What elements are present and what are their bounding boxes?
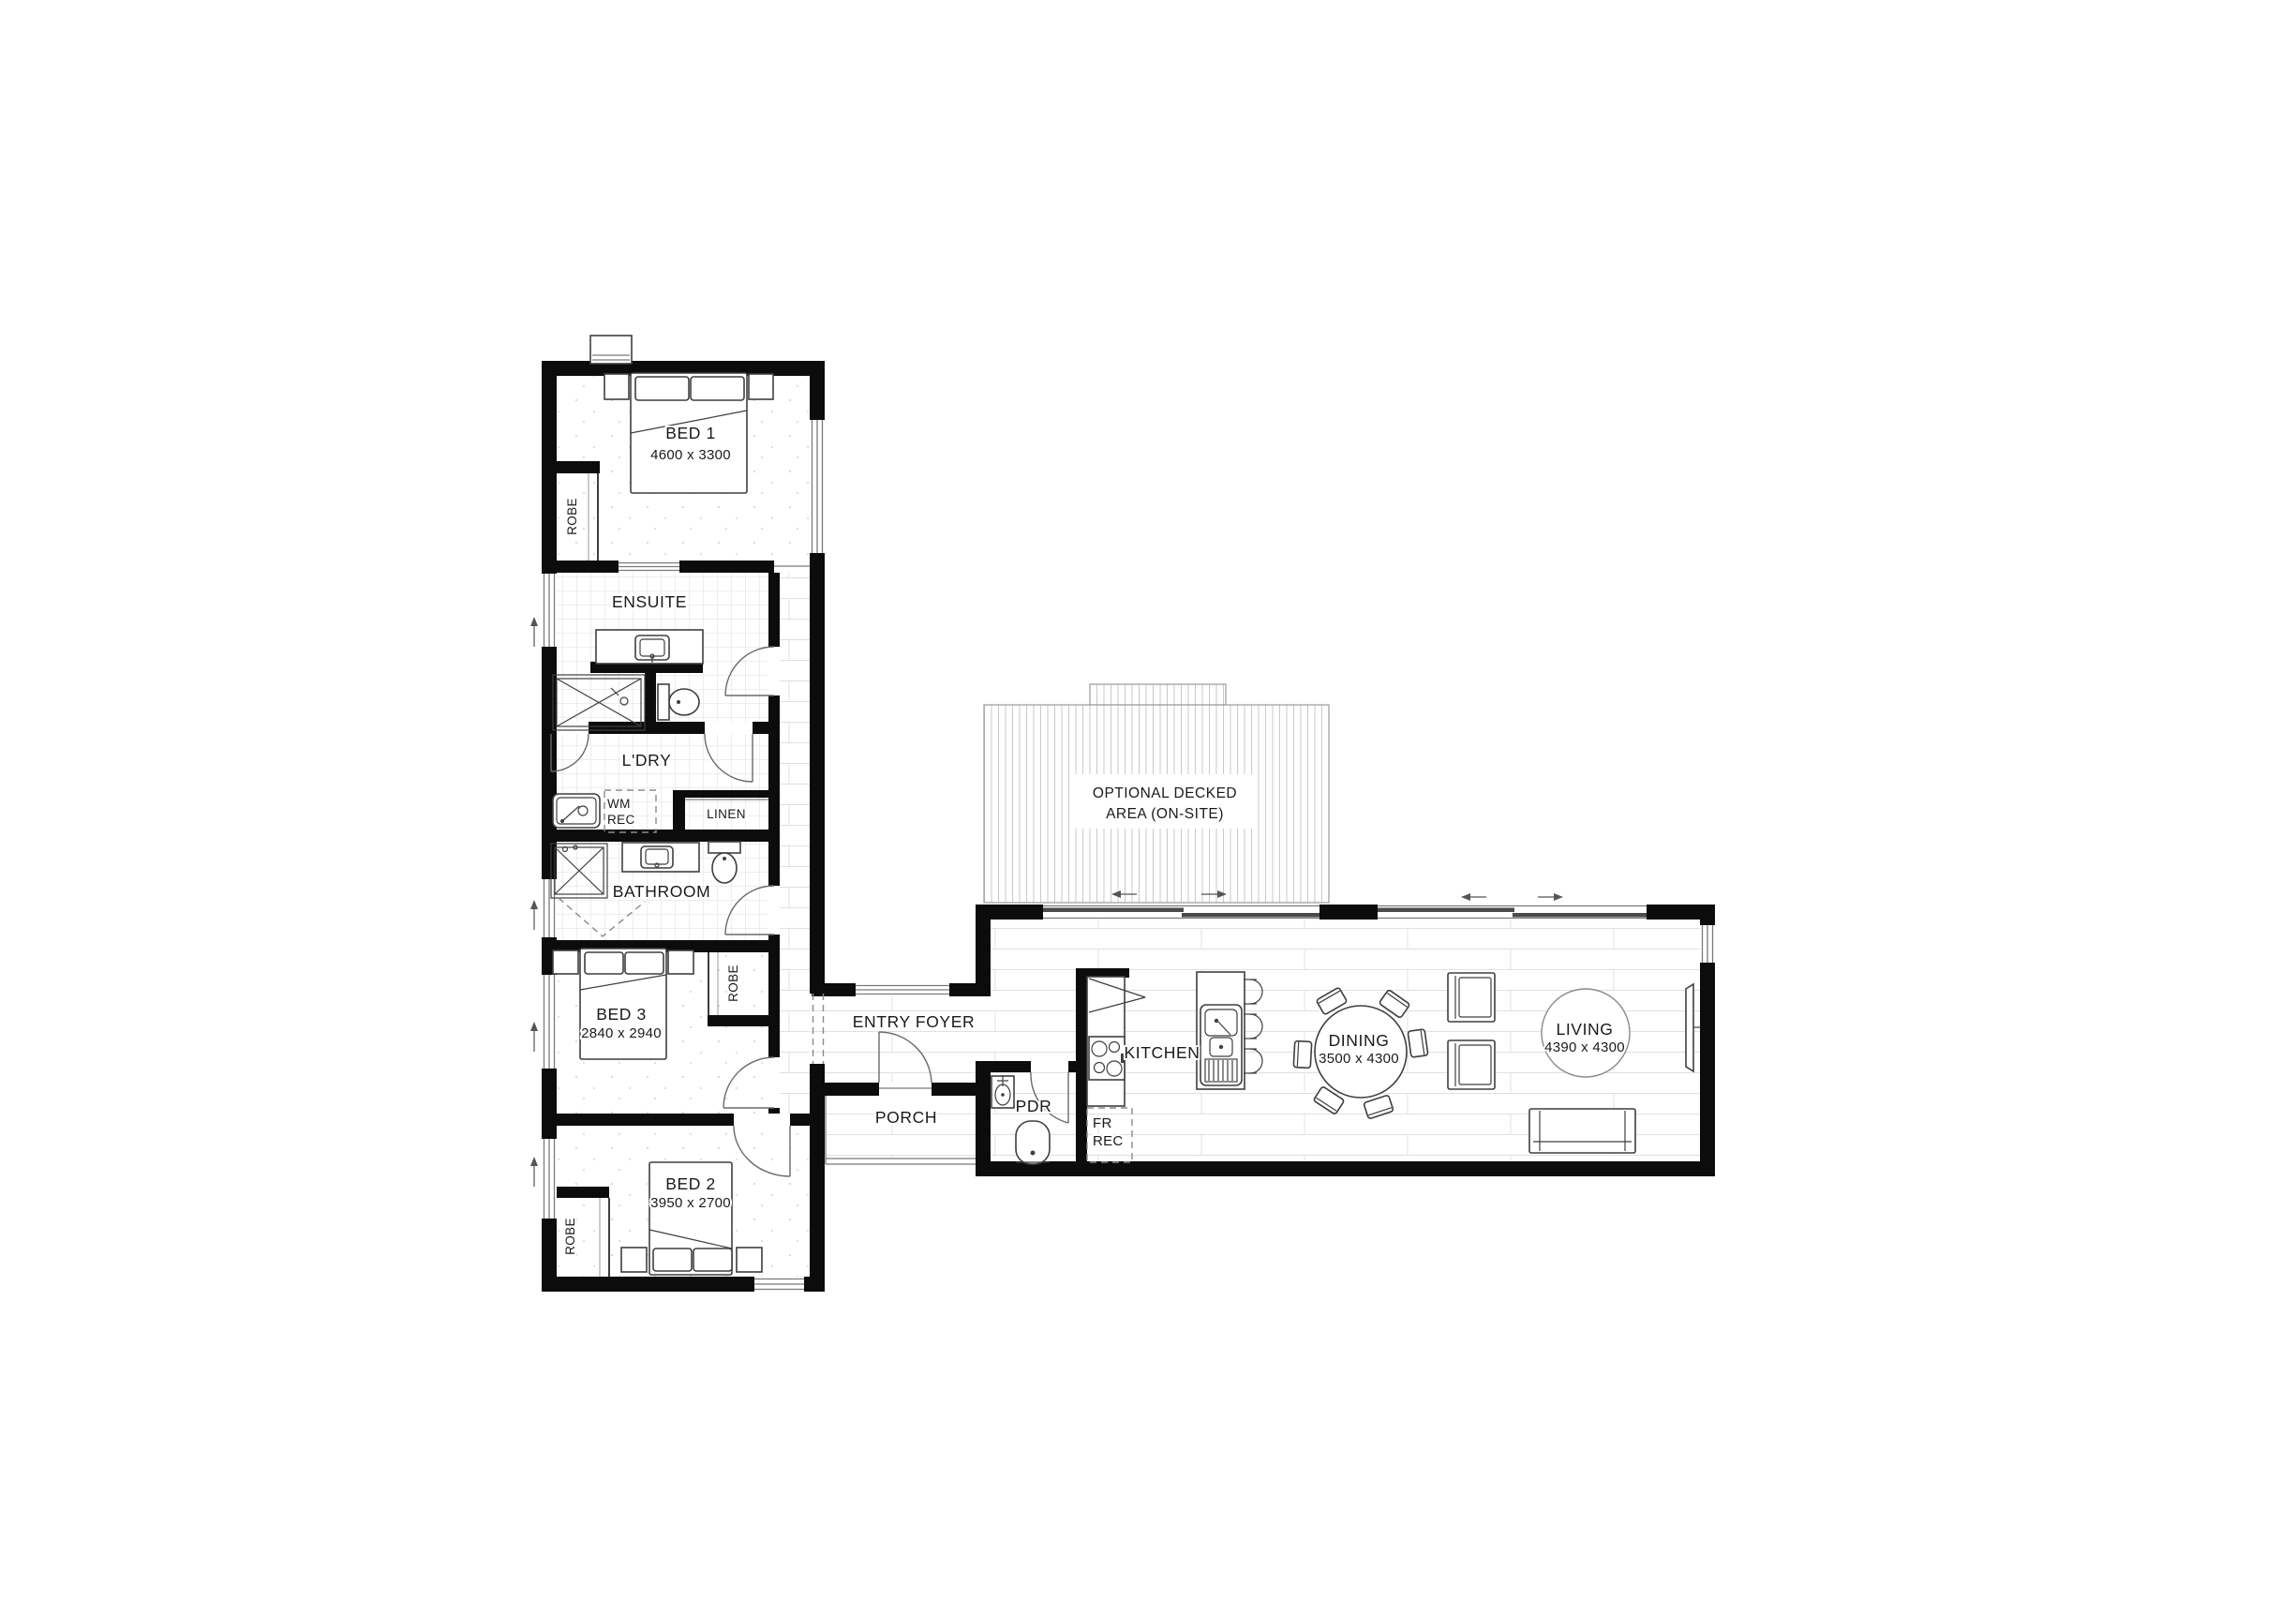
window: [542, 1139, 557, 1219]
floorplan: BED 1 4600 x 3300 ROBE ENSUITE L'DRY WM …: [0, 0, 2296, 1600]
floor-porch: [827, 1096, 976, 1159]
room-label-ldry: L'DRY: [622, 751, 672, 770]
toilet-icon: [1016, 1121, 1050, 1164]
sliding-door: [1378, 905, 1647, 920]
fr-rec-label-2: REC: [1093, 1133, 1124, 1149]
up-arrow: [530, 900, 538, 930]
wm-rec-label-1: WM: [607, 797, 631, 811]
box-window: [590, 336, 632, 364]
room-label-pdr: PDR: [1016, 1097, 1052, 1115]
window: [542, 574, 557, 647]
armchair-icon: [1448, 973, 1495, 1022]
window: [856, 983, 949, 996]
window: [542, 975, 557, 1069]
sliding-door: [1043, 905, 1319, 920]
room-dims-living: 4390 x 4300: [1544, 1039, 1625, 1055]
cooktop-icon: [1089, 1037, 1125, 1080]
deck-label-2: AREA (ON-SITE): [1106, 806, 1224, 822]
window: [754, 1277, 804, 1292]
vanity-icon: [622, 843, 699, 872]
window: [810, 420, 825, 553]
room-label-bed3: BED 3: [596, 1005, 647, 1024]
room-label-bed1: BED 1: [665, 424, 716, 442]
up-arrow: [530, 617, 538, 647]
room-label-kitchen: KITCHEN: [1124, 1043, 1200, 1062]
opening: [774, 561, 810, 573]
room-label-bed2: BED 2: [665, 1174, 716, 1193]
floorplan-drawing: BED 1 4600 x 3300 ROBE ENSUITE L'DRY WM …: [0, 0, 2296, 1600]
robe-label: ROBE: [726, 964, 740, 1002]
room-label-bathroom: BATHROOM: [613, 882, 711, 901]
deck-label-1: OPTIONAL DECKED: [1093, 785, 1237, 801]
window-arrows: [530, 617, 538, 1187]
armchair-icon: [1448, 1040, 1495, 1089]
room-label-ensuite: ENSUITE: [612, 592, 687, 611]
laundry-trough-icon: [553, 794, 600, 828]
room-dims-bed3: 2840 x 2940: [581, 1025, 662, 1041]
wm-rec-label-2: REC: [607, 813, 635, 827]
robe-label: ROBE: [565, 498, 579, 535]
basin-icon: [991, 1075, 1014, 1108]
sofa-icon: [1529, 1109, 1635, 1153]
room-label-entry-foyer: ENTRY FOYER: [853, 1012, 975, 1031]
island-bench: [1197, 972, 1245, 1089]
vanity-icon: [596, 630, 703, 664]
floor-hall: [780, 573, 810, 1114]
linen-label: LINEN: [707, 807, 746, 821]
room-label-living: LIVING: [1557, 1020, 1614, 1039]
cavity-slider: [619, 561, 679, 573]
up-arrow: [530, 1022, 538, 1052]
room-dims-dining: 3500 x 4300: [1319, 1051, 1399, 1067]
up-arrow: [530, 1157, 538, 1187]
slide-arrow: [1461, 893, 1486, 901]
fr-rec-label-1: FR: [1093, 1115, 1112, 1131]
room-dims-bed1: 4600 x 3300: [650, 447, 731, 463]
deck-step: [1090, 684, 1226, 705]
floor-foyer: [812, 996, 991, 1083]
room-label-porch: PORCH: [875, 1108, 937, 1127]
robe-label: ROBE: [563, 1218, 577, 1255]
room-label-dining: DINING: [1329, 1031, 1390, 1050]
room-dims-bed2: 3950 x 2700: [650, 1195, 731, 1211]
window: [1700, 925, 1715, 963]
slide-arrow: [1538, 893, 1563, 901]
